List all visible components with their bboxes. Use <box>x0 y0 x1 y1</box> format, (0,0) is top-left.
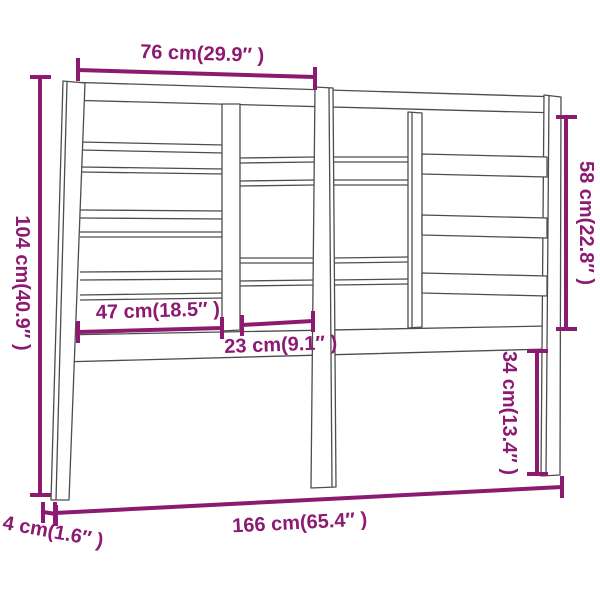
post-center <box>311 87 336 488</box>
dimension-label-top-width: 76 cm(29.9″ ) <box>140 41 265 67</box>
dimension-label-right-height: 58 cm(22.8″ ) <box>575 161 597 285</box>
dimension-label-leg-height: 34 cm(13.4″ ) <box>498 351 520 475</box>
dimension-label-board-width: 47 cm(18.5″ ) <box>96 298 221 323</box>
dimension-label-left-height: 104 cm(40.9″ ) <box>11 215 33 350</box>
post-mid-left <box>222 104 240 331</box>
dimension-label-middle-gap: 23 cm(9.1″ ) <box>224 332 338 358</box>
post-mid-right <box>408 112 422 328</box>
dimension-diagram: 76 cm(29.9″ ) 104 cm(40.9″ ) 58 cm(22.8″… <box>0 0 600 600</box>
